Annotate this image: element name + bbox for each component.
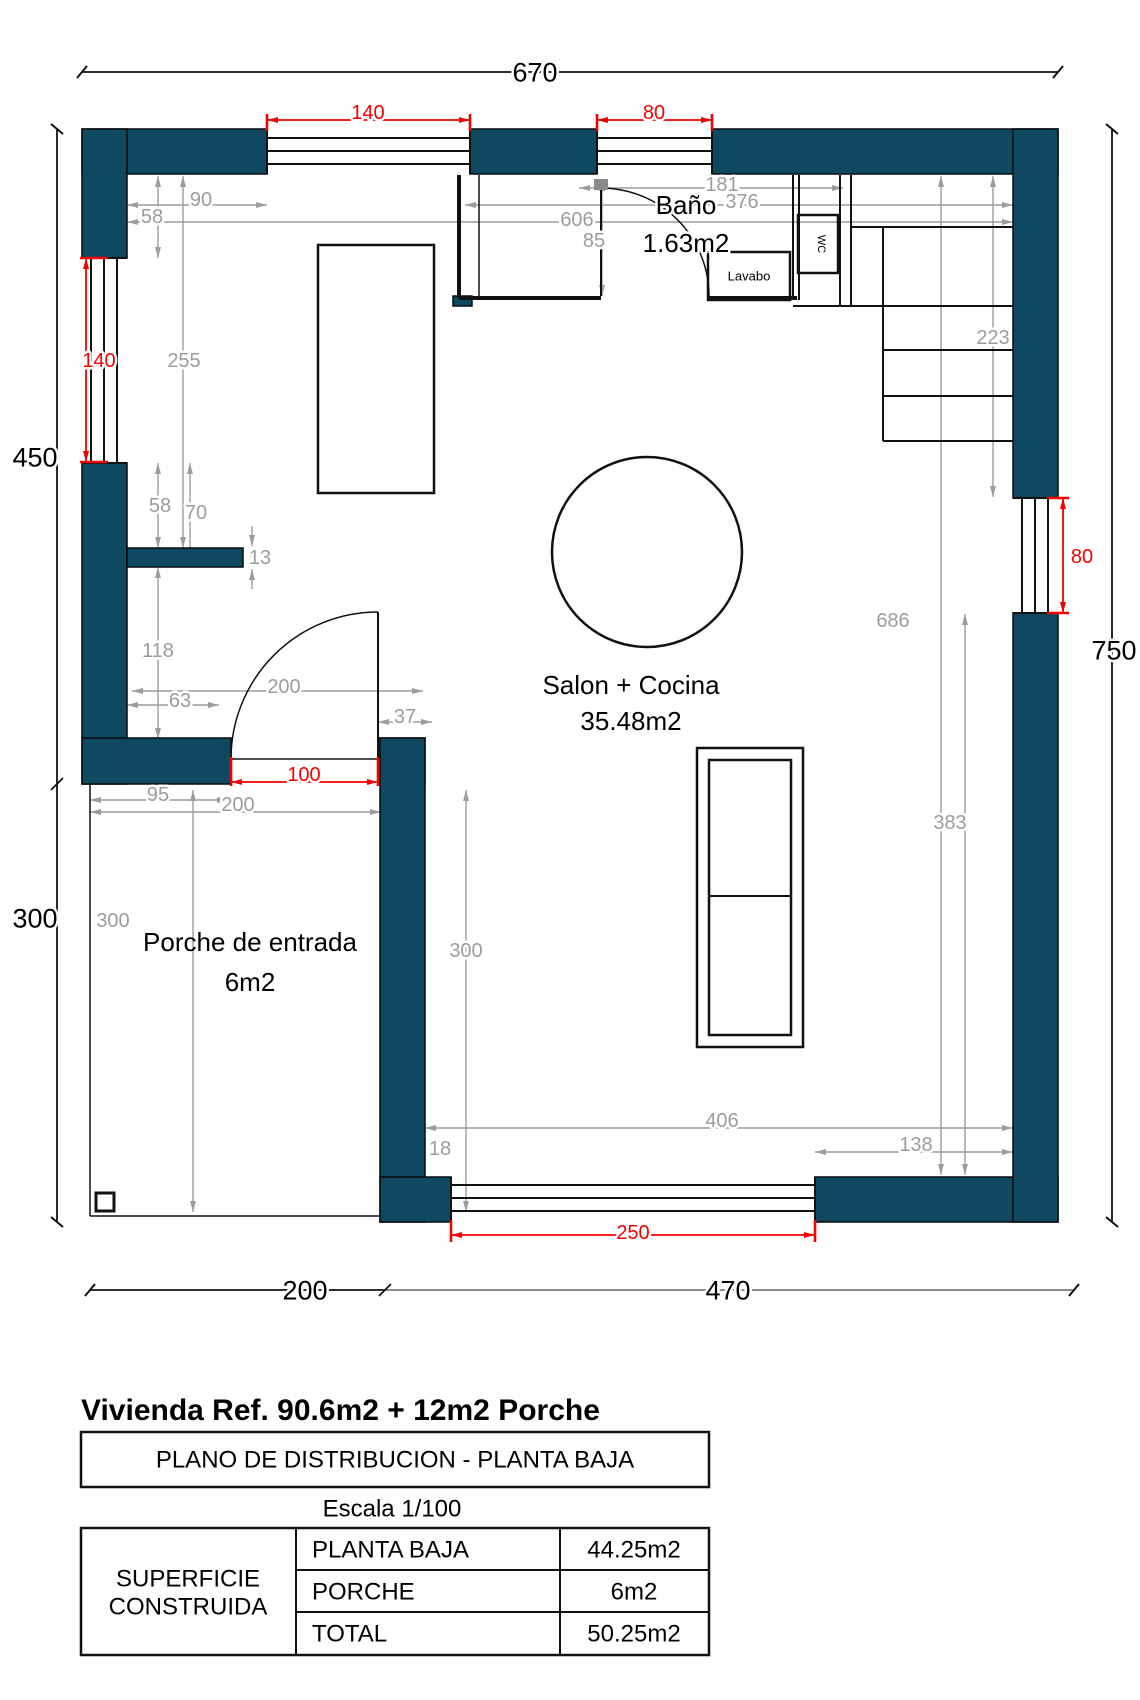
table-row-label-0: PLANTA BAJA (312, 1536, 469, 1563)
dim-670-label: 670 (512, 57, 557, 87)
porche-name: Porche de entrada (143, 927, 357, 957)
floor-plan-svg: 670 450 300 750 200 470 140 80 140 100 8… (0, 0, 1140, 1700)
gray-dim-686: 686 (876, 610, 909, 632)
gray-dim-95: 95 (147, 784, 169, 806)
table-row-value-1: 6m2 (611, 1578, 658, 1605)
table-row-value-2: 50.25m2 (587, 1620, 680, 1647)
gray-dim-13: 13 (249, 547, 271, 569)
table-row-label-1: PORCHE (312, 1578, 415, 1605)
gray-dim-606: 606 (560, 209, 593, 231)
lavabo-label: Lavabo (728, 269, 771, 284)
salon-area: 35.48m2 (580, 706, 681, 736)
gray-dim-18: 18 (429, 1138, 451, 1160)
gray-dim-58b: 58 (149, 495, 171, 517)
scale-label: Escala 1/100 (323, 1495, 462, 1522)
plan-heading: Vivienda Ref. 90.6m2 + 12m2 Porche (81, 1394, 600, 1427)
gray-dim-376: 376 (725, 191, 758, 213)
dim-750-label: 750 (1091, 635, 1136, 665)
table-header-line2: CONSTRUIDA (109, 1593, 268, 1620)
door-hinge-marker (594, 179, 608, 190)
gray-dim-138: 138 (899, 1134, 932, 1156)
dim-470-label: 470 (705, 1275, 750, 1305)
gray-dim-63: 63 (169, 690, 191, 712)
gray-dim-223: 223 (976, 327, 1009, 349)
gray-dim-255: 255 (167, 350, 200, 372)
table-row-value-0: 44.25m2 (587, 1536, 680, 1563)
floor-plan-page: 670 450 300 750 200 470 140 80 140 100 8… (0, 0, 1140, 1700)
porche-area: 6m2 (225, 967, 276, 997)
gray-dim-70: 70 (185, 502, 207, 524)
red-dim-bottom-window: 250 (616, 1222, 649, 1244)
window-top-1 (267, 129, 470, 174)
red-dim-top-window1: 140 (351, 102, 384, 124)
gray-dim-200b: 200 (221, 794, 254, 816)
furniture-rect-left (318, 245, 434, 493)
window-top-2 (597, 129, 712, 174)
window-bottom (451, 1177, 815, 1222)
dim-200-label: 200 (282, 1275, 327, 1305)
gray-dim-200a: 200 (267, 676, 300, 698)
gray-dim-90: 90 (190, 189, 212, 211)
table-row-label-2: TOTAL (312, 1620, 387, 1647)
window-right (1013, 498, 1058, 613)
red-dim-top-window2: 80 (643, 102, 665, 124)
porch-pillar (96, 1193, 114, 1211)
title-block: Vivienda Ref. 90.6m2 + 12m2 Porche PLANO… (81, 1394, 709, 1655)
bano-area: 1.63m2 (643, 228, 730, 258)
dim-300-label: 300 (12, 903, 57, 933)
room-labels: Baño 1.63m2 Salon + Cocina 35.48m2 Porch… (143, 190, 827, 997)
gray-dim-406: 406 (705, 1110, 738, 1132)
red-dim-right-window: 80 (1071, 546, 1093, 568)
red-dim-entry-door: 100 (287, 764, 320, 786)
gray-dim-118: 118 (142, 640, 174, 662)
gray-dim-383: 383 (933, 812, 966, 834)
wc-label: WC (815, 235, 827, 253)
porch-outline (90, 784, 380, 1216)
dim-450-label: 450 (12, 442, 57, 472)
gray-dim-300-interior: 300 (449, 940, 482, 962)
sofa (697, 748, 803, 1047)
salon-name: Salon + Cocina (542, 670, 720, 700)
bano-name: Baño (656, 190, 717, 220)
round-table (552, 457, 742, 647)
table-header-line1: SUPERFICIE (116, 1565, 260, 1592)
gray-dim-58a: 58 (141, 206, 163, 228)
gray-dim-300-porch: 300 (96, 910, 129, 932)
interior-wall-stub (127, 548, 243, 567)
gray-dim-37: 37 (394, 706, 416, 728)
red-dim-left-window: 140 (82, 350, 115, 372)
plan-box-label: PLANO DE DISTRIBUCION - PLANTA BAJA (156, 1446, 634, 1473)
gray-dim-85: 85 (583, 230, 605, 252)
area-table: SUPERFICIE CONSTRUIDA PLANTA BAJA 44.25m… (81, 1528, 709, 1655)
entrance-door (231, 612, 378, 759)
